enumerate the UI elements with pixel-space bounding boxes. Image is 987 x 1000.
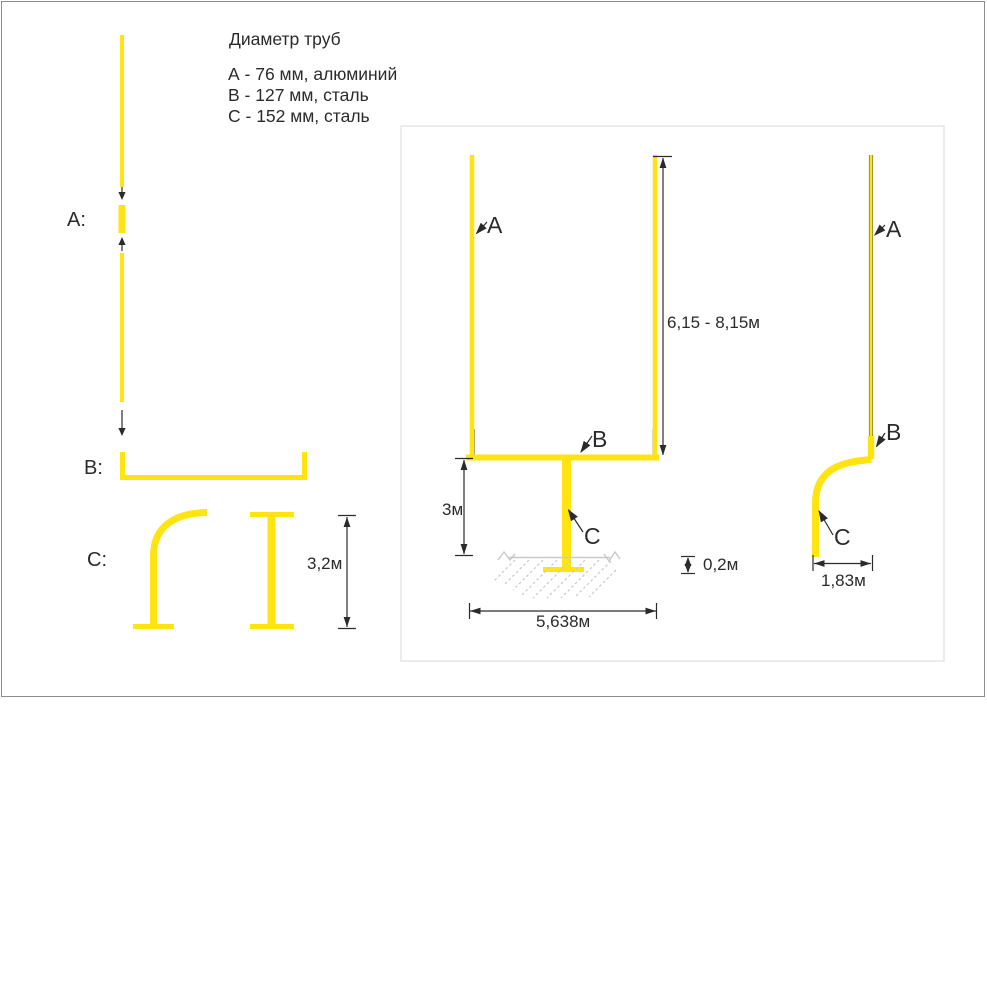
legend-item-c: С - 152 мм, сталь (228, 106, 370, 126)
part-c-label: С: (87, 549, 107, 572)
side-label-a: A (886, 216, 901, 242)
dim-c-height-arrow-up-icon (344, 517, 351, 527)
dim-c-height-arrow-down-icon (344, 617, 351, 627)
pipe-b-crossbar-part (123, 452, 305, 478)
pipe-c-gooseneck-part (154, 513, 208, 625)
dim-upright-label: 6,15 - 8,15м (667, 313, 760, 333)
legend-item-a: А - 76 мм, алюминий (228, 64, 397, 84)
dim-post-label: 3м (442, 500, 463, 520)
front-label-c: C (584, 523, 601, 549)
dim-depth-label: 0,2м (703, 555, 738, 575)
front-label-b: B (592, 426, 607, 452)
side-label-b: B (886, 419, 901, 445)
assembly-arrow-up-icon (118, 237, 125, 245)
part-a-label: А: (67, 209, 86, 232)
legend-title: Диаметр труб (229, 29, 341, 49)
front-label-a: A (487, 212, 502, 238)
dim-c-height-label: 3,2м (307, 554, 342, 574)
assembly-arrow-long-icon (118, 428, 125, 436)
assembly-arrow-down-icon (118, 192, 125, 200)
technical-drawing-page: Диаметр труб А - 76 мм, алюминий В - 127… (0, 0, 987, 1000)
legend-item-b: В - 127 мм, сталь (228, 85, 369, 105)
drawing-layer (0, 0, 987, 1000)
side-label-c: C (834, 524, 851, 550)
dim-offset-label: 1,83м (821, 571, 866, 591)
part-b-label: В: (84, 457, 103, 480)
dim-width-label: 5,638м (536, 612, 590, 632)
